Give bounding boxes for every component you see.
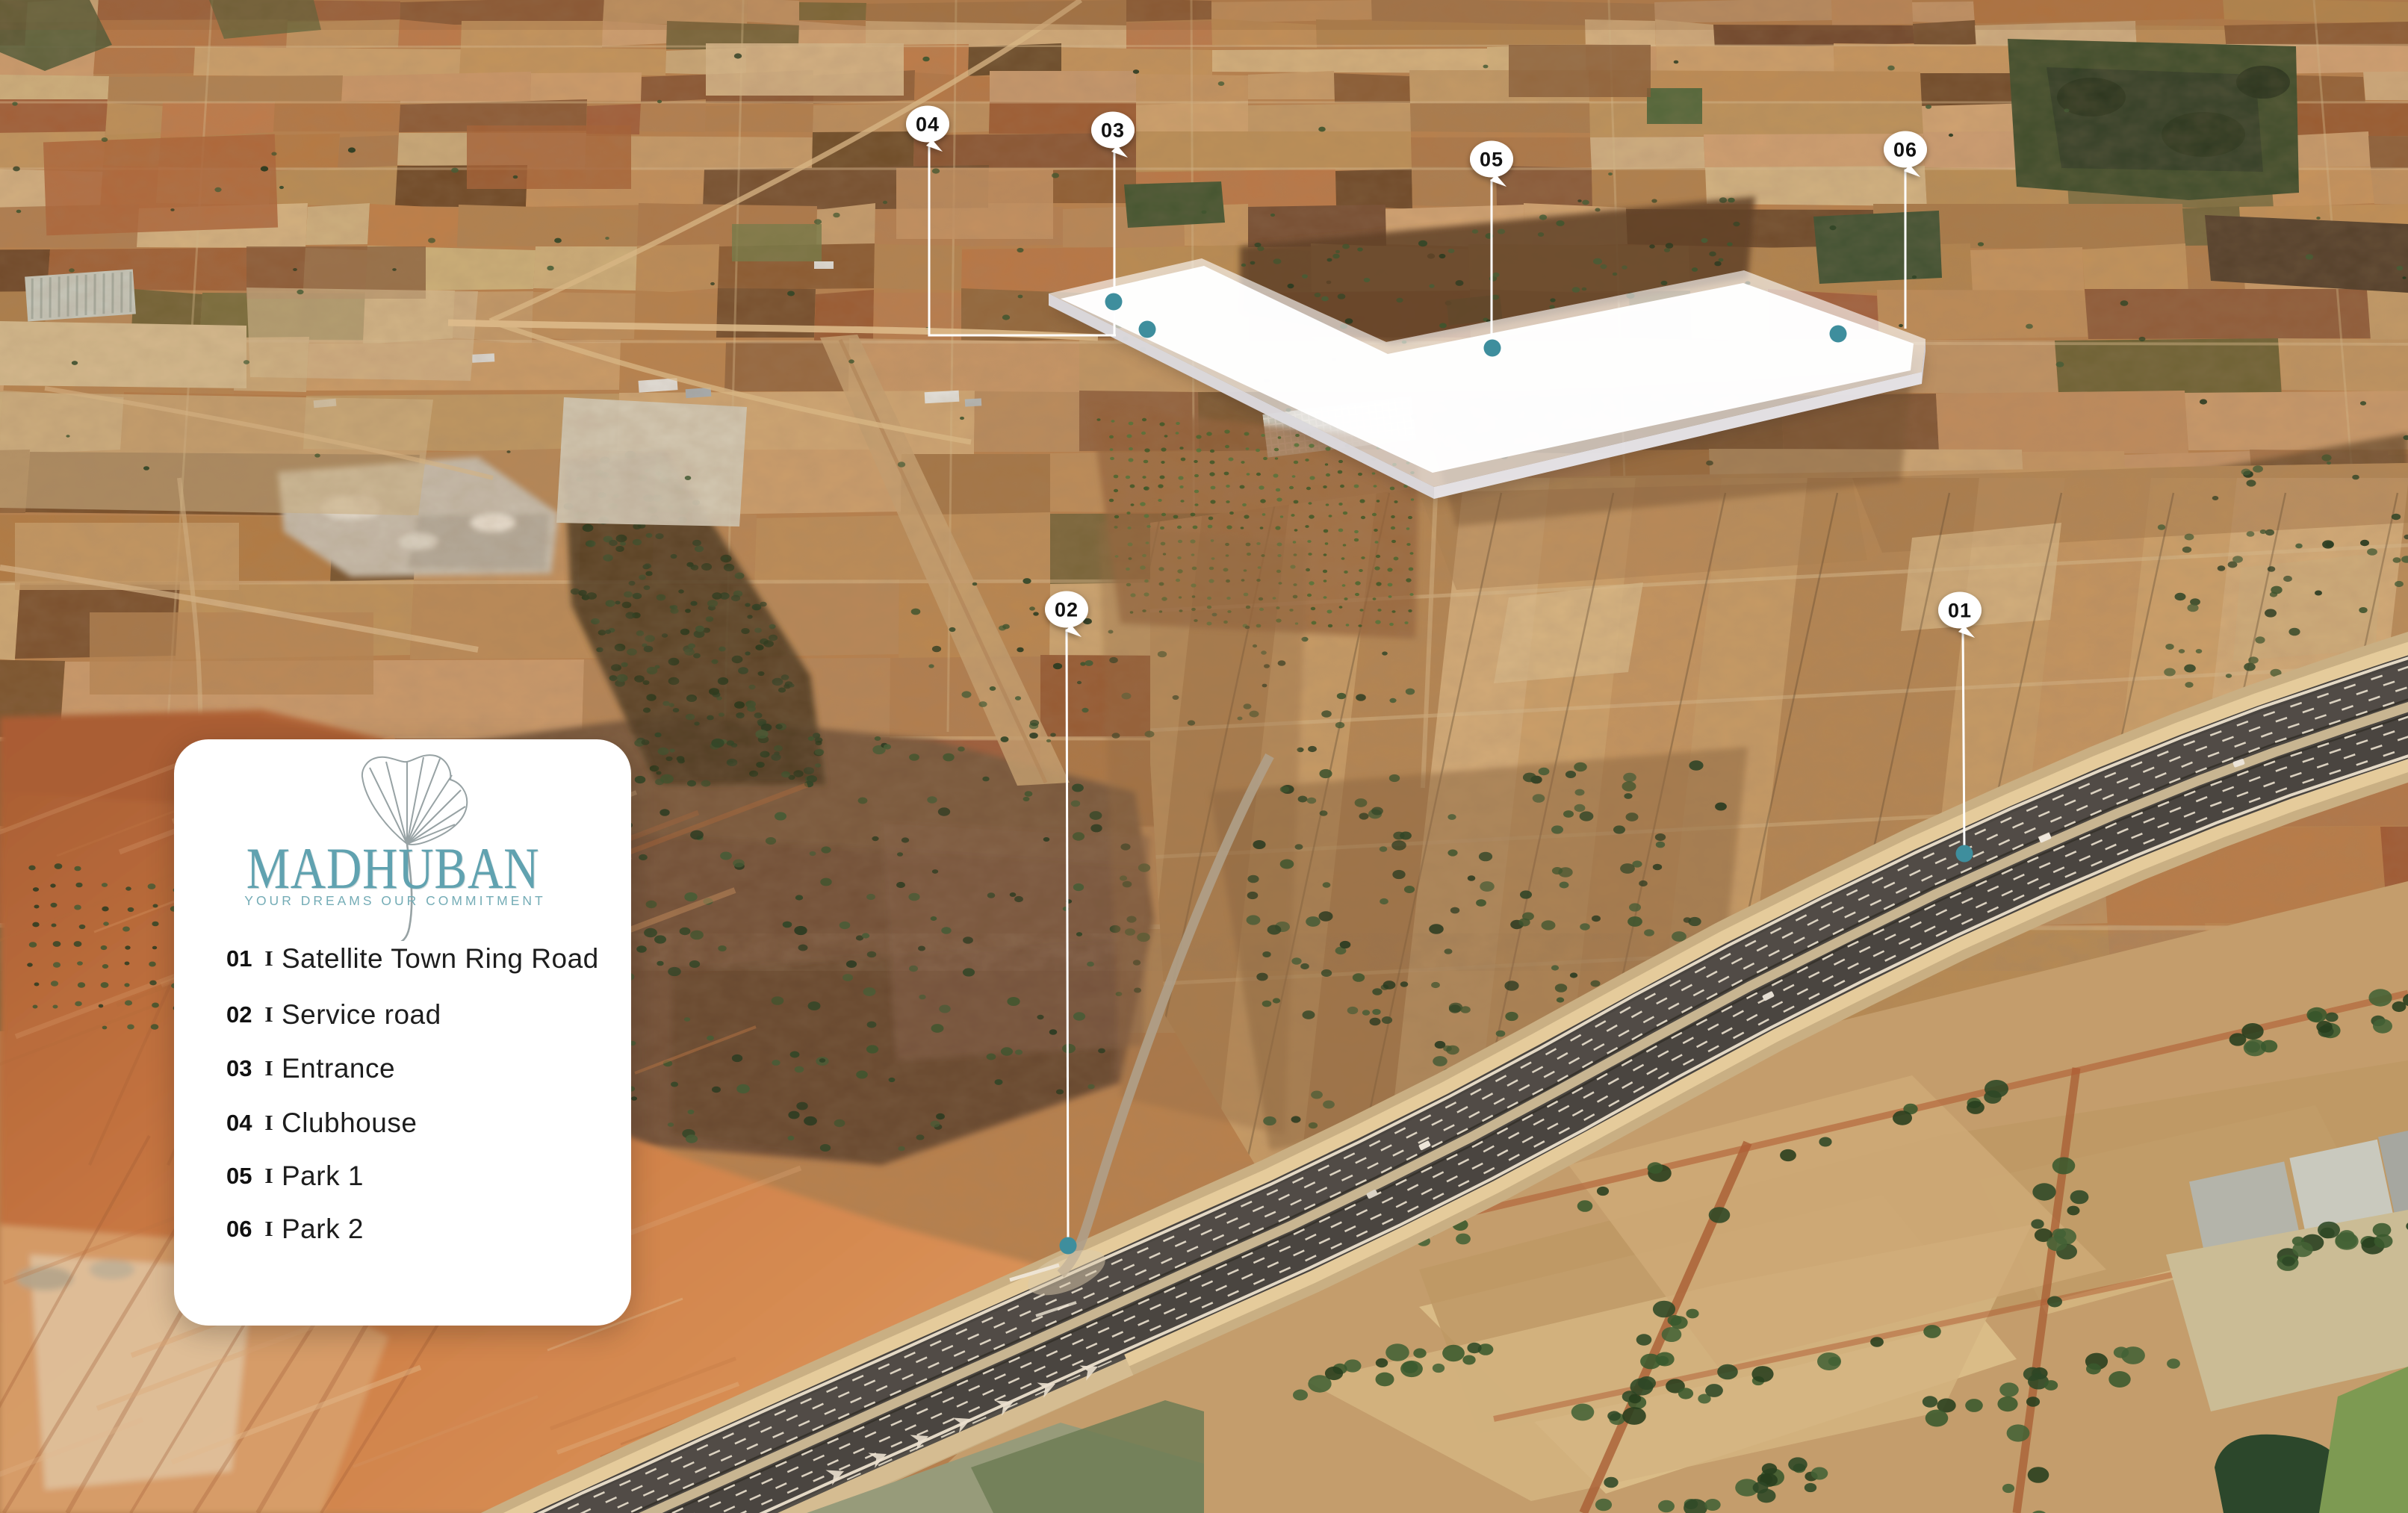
svg-text:04: 04 [916,114,940,136]
svg-text:02: 02 [1055,599,1079,621]
svg-text:06: 06 [1893,139,1917,161]
svg-text:01: 01 [1948,600,1972,622]
svg-text:05: 05 [1480,149,1504,171]
svg-text:03: 03 [1101,119,1125,142]
